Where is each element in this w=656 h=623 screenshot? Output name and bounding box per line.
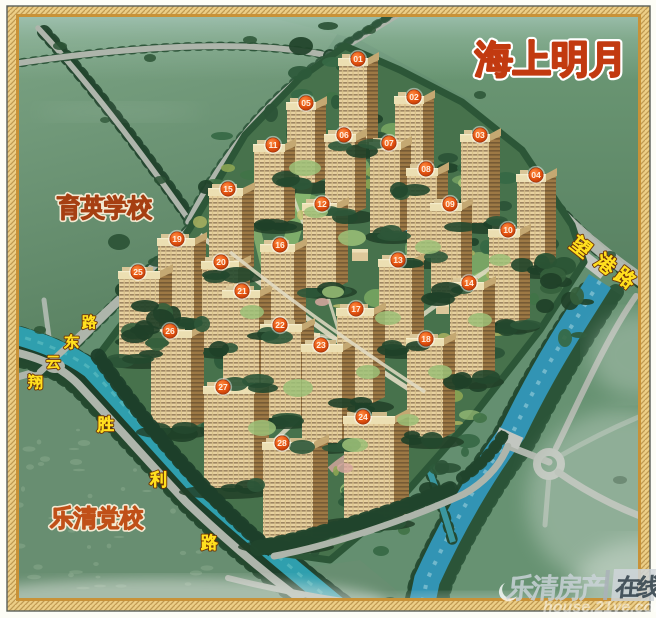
svg-text:11: 11 [268, 140, 277, 150]
svg-text:13: 13 [393, 255, 403, 265]
svg-text:17: 17 [351, 304, 361, 314]
svg-text:09: 09 [445, 199, 455, 209]
svg-text:24: 24 [358, 412, 368, 422]
svg-text:21: 21 [237, 286, 247, 296]
svg-text:05: 05 [301, 98, 311, 108]
svg-text:15: 15 [223, 184, 233, 194]
svg-text:23: 23 [316, 340, 326, 350]
svg-text:08: 08 [421, 164, 431, 174]
svg-text:01: 01 [353, 54, 363, 64]
svg-text:27: 27 [218, 382, 228, 392]
svg-text:04: 04 [531, 170, 541, 180]
svg-text:19: 19 [172, 234, 182, 244]
svg-text:14: 14 [464, 278, 474, 288]
svg-text:07: 07 [384, 138, 394, 148]
svg-text:house.21ye.com: house.21ye.com [543, 599, 656, 616]
svg-text:26: 26 [165, 326, 175, 336]
svg-text:22: 22 [275, 320, 285, 330]
svg-text:10: 10 [503, 225, 513, 235]
svg-text:12: 12 [317, 199, 327, 209]
svg-text:20: 20 [216, 257, 226, 267]
svg-text:02: 02 [409, 92, 419, 102]
svg-text:25: 25 [133, 267, 143, 277]
svg-text:28: 28 [277, 438, 287, 448]
svg-text:16: 16 [275, 240, 285, 250]
svg-text:18: 18 [421, 334, 431, 344]
svg-text:06: 06 [339, 130, 349, 140]
svg-text:03: 03 [475, 130, 485, 140]
